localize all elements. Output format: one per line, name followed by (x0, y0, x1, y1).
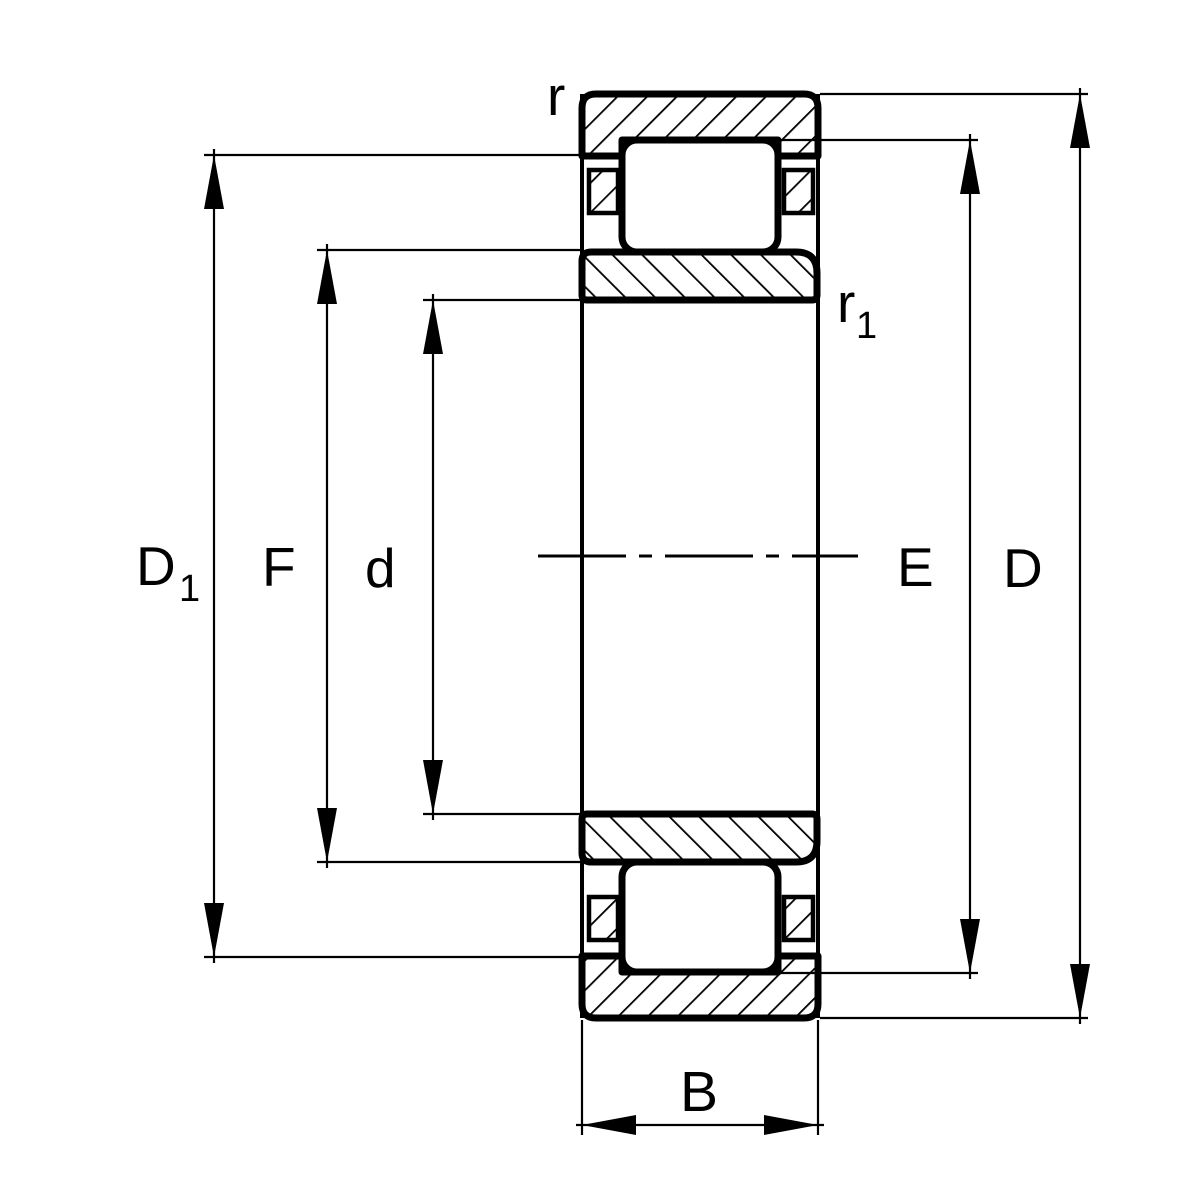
cage-bottom-right (784, 897, 813, 940)
dimension-F: F (262, 244, 584, 868)
label-E: E (897, 536, 934, 598)
dimension-B: B (576, 1020, 824, 1135)
arrowhead-D1-up (204, 155, 224, 209)
label-r1-group: r 1 (837, 272, 877, 347)
dimension-D1: D 1 (136, 149, 584, 963)
arrowhead-F-up (317, 250, 337, 304)
roller-bottom (622, 862, 778, 972)
arrowhead-F-down (317, 808, 337, 862)
label-F: F (262, 536, 296, 598)
arrowhead-D-down (1070, 964, 1090, 1018)
cage-bottom-left (589, 897, 618, 940)
dimension-D: D (820, 88, 1090, 1024)
bearing-cross-section (538, 94, 858, 1018)
label-r: r (547, 65, 565, 127)
cage-top-left (589, 170, 618, 213)
label-r1: r (837, 272, 855, 334)
label-B: B (680, 1060, 718, 1124)
arrowhead-D-up (1070, 94, 1090, 148)
arrowhead-B-right (764, 1115, 818, 1135)
arrowhead-B-left (582, 1115, 636, 1135)
label-d: d (365, 537, 396, 599)
drawing-canvas: D 1 F d E (0, 0, 1200, 1200)
arrowhead-E-down (960, 919, 980, 973)
arrowhead-D1-down (204, 903, 224, 957)
inner-ring-bottom-section (582, 814, 817, 862)
cage-top-right (784, 170, 813, 213)
arrowhead-E-up (960, 140, 980, 194)
inner-ring-top-section (582, 252, 817, 300)
label-D1: D (136, 535, 176, 597)
label-D: D (1003, 537, 1043, 599)
arrowhead-d-up (423, 300, 443, 354)
roller-top (622, 140, 778, 252)
label-r1-subscript: 1 (856, 305, 877, 347)
arrowhead-d-down (423, 760, 443, 814)
bearing-dimension-drawing: D 1 F d E (0, 0, 1200, 1200)
label-D1-subscript: 1 (179, 568, 200, 610)
